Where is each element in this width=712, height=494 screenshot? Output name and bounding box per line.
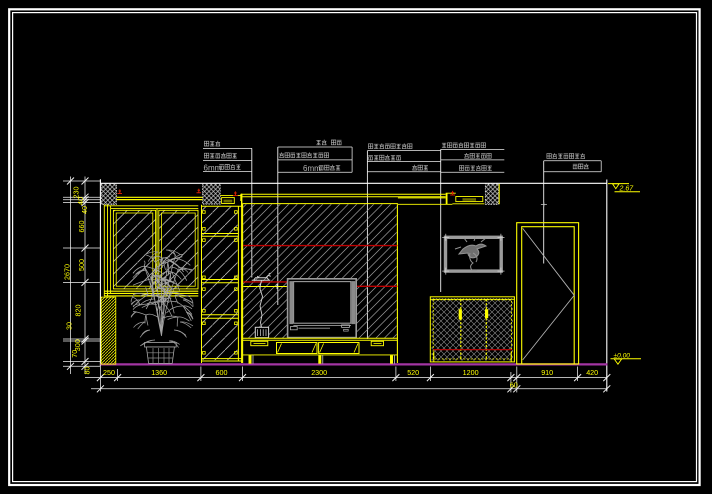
svg-text:40: 40 [76, 197, 85, 205]
svg-text:230: 230 [72, 187, 81, 199]
svg-text:1360: 1360 [151, 368, 167, 377]
svg-text:80: 80 [82, 367, 91, 375]
svg-text:40: 40 [80, 206, 89, 214]
svg-text:1200: 1200 [463, 368, 479, 377]
svg-text:420: 420 [586, 368, 598, 377]
svg-text:660: 660 [77, 221, 86, 233]
svg-text:520: 520 [407, 368, 419, 377]
svg-text:6mm: 6mm [204, 163, 222, 172]
svg-text:250: 250 [103, 368, 115, 377]
svg-text:30: 30 [65, 322, 74, 330]
svg-text:300: 300 [73, 339, 82, 351]
svg-text:600: 600 [216, 368, 228, 377]
svg-text:500: 500 [77, 259, 86, 271]
svg-text:70: 70 [70, 350, 79, 358]
svg-text:2300: 2300 [311, 368, 327, 377]
svg-text:2670: 2670 [63, 264, 72, 280]
svg-text:6mm: 6mm [303, 164, 321, 173]
svg-text:910: 910 [541, 368, 553, 377]
svg-text:820: 820 [74, 305, 83, 317]
svg-text:60: 60 [510, 380, 518, 389]
